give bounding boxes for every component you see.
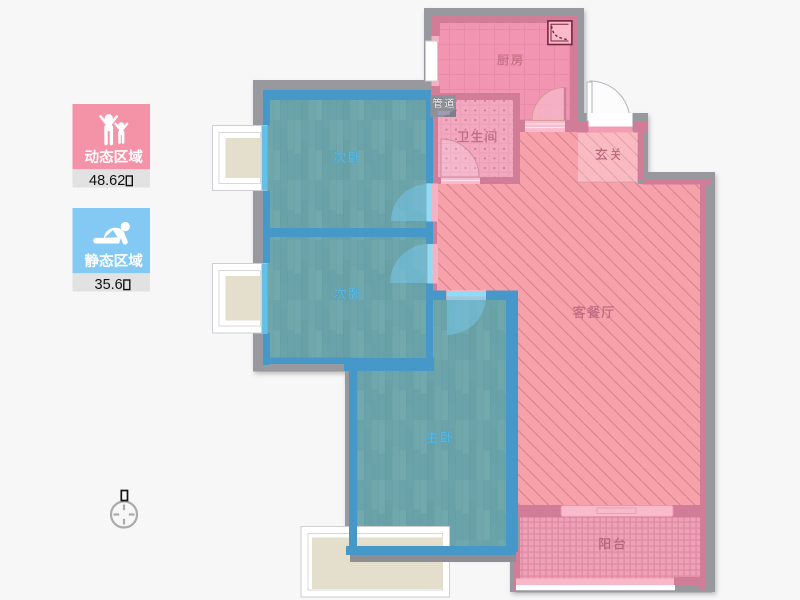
- svg-text:35.6: 35.6: [95, 277, 123, 293]
- svg-text:48.62: 48.62: [89, 173, 125, 189]
